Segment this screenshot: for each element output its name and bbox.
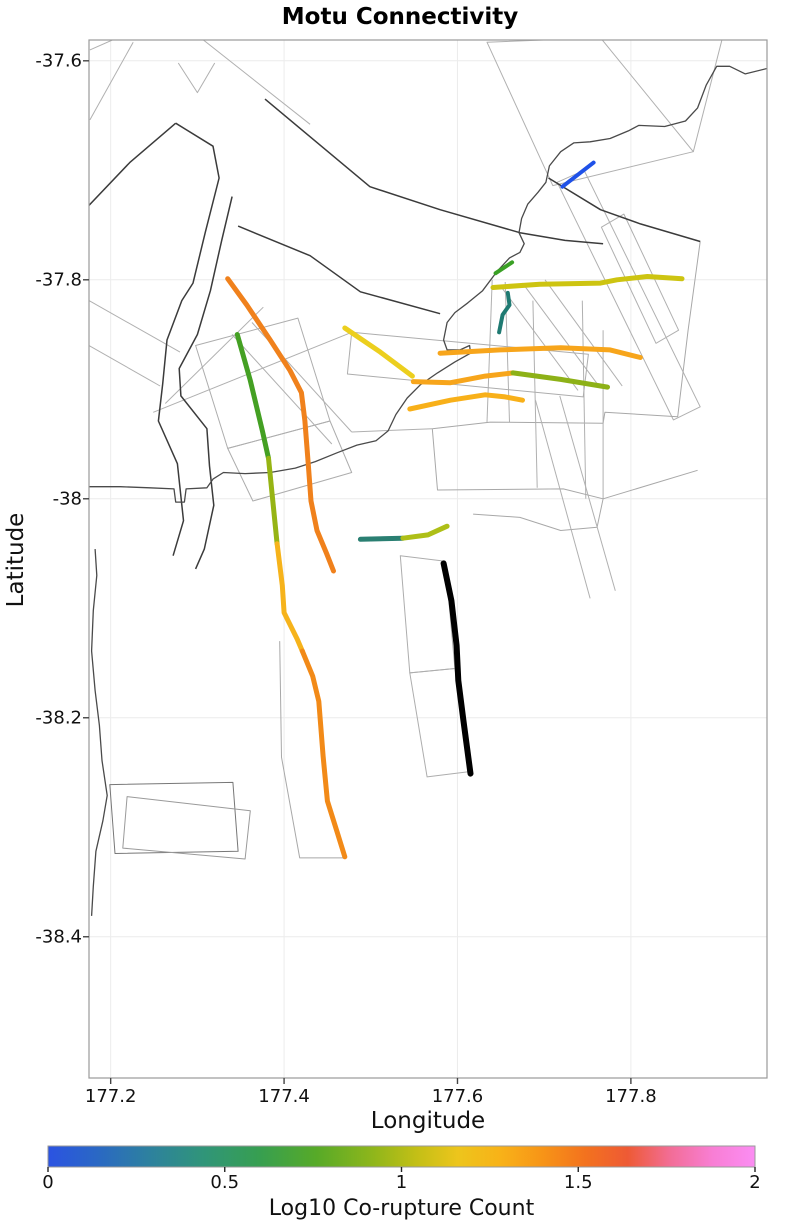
- colorbar-tick-label: 2: [749, 1172, 760, 1193]
- colorbar-tick-label: 0.5: [210, 1172, 239, 1193]
- fault-outline: [89, 346, 160, 387]
- map-content: [89, 38, 767, 916]
- fault-trace-dark: [179, 197, 232, 569]
- fault-outline: [560, 396, 616, 591]
- x-tick-label: 177.4: [258, 1086, 310, 1107]
- fault-outline: [693, 40, 722, 152]
- fault-trace-dark: [549, 178, 701, 242]
- colorbar-label: Log10 Co-rupture Count: [48, 1196, 755, 1221]
- trace-amber-lower: [410, 395, 523, 409]
- trace-long-south-orange: [302, 651, 345, 857]
- figure: Motu Connectivity Latitude Longitude Log…: [0, 0, 800, 1225]
- chart-title: Motu Connectivity: [0, 4, 800, 30]
- trace-chartreuse-long: [493, 277, 682, 288]
- fault-trace-dark: [238, 226, 440, 314]
- fault-outline: [352, 429, 433, 432]
- trace-teal-horizontal: [360, 538, 403, 539]
- fault-outline: [228, 421, 352, 501]
- fault-outline: [432, 242, 700, 429]
- fault-outline: [178, 63, 214, 93]
- fault-outline: [110, 782, 238, 853]
- x-tick-label: 177.6: [432, 1086, 484, 1107]
- trace-orange-mid-west: [413, 373, 513, 383]
- colorbar-tick-label: 1.5: [564, 1172, 593, 1193]
- fault-outline: [153, 332, 352, 412]
- fault-outline: [347, 332, 588, 397]
- y-tick-label: -37.6: [12, 50, 82, 71]
- trace-yellowgreen-mid-east: [513, 373, 608, 387]
- fault-outline: [536, 400, 591, 598]
- trace-chartreuse-horizontal: [403, 526, 447, 538]
- y-tick-label: -38.2: [12, 707, 82, 728]
- fault-outline: [90, 40, 113, 50]
- y-axis-label: Latitude: [3, 513, 29, 608]
- fault-outline: [123, 797, 251, 859]
- colorbar-tick-label: 1: [396, 1172, 407, 1193]
- fault-outline: [90, 42, 133, 120]
- colorbar: [48, 1146, 755, 1167]
- trace-orange-upper: [440, 348, 640, 358]
- fault-trace-dark: [265, 99, 603, 244]
- fault-outline: [582, 301, 586, 499]
- x-axis-label: Longitude: [89, 1108, 767, 1134]
- fault-outline: [203, 40, 310, 124]
- fault-outline: [232, 335, 332, 445]
- colorbar-tick-label: 0: [42, 1172, 53, 1193]
- map-canvas: [0, 0, 800, 1225]
- trace-long-mid-amber: [277, 544, 302, 651]
- trace-teal-short: [499, 293, 509, 332]
- x-tick-label: 177.2: [85, 1086, 137, 1107]
- x-tick-label: 177.8: [605, 1086, 657, 1107]
- fault-outline: [533, 301, 537, 488]
- trace-blue: [562, 163, 593, 187]
- y-tick-label: -37.8: [12, 269, 82, 290]
- fault-trace-dark: [158, 123, 219, 556]
- coastline: [92, 549, 108, 916]
- y-tick-label: -38: [12, 488, 82, 509]
- fault-outline: [473, 499, 603, 531]
- fault-trace-dark: [89, 123, 176, 205]
- y-tick-label: -38.4: [12, 926, 82, 947]
- fault-outline: [432, 429, 697, 499]
- trace-long-north-green: [237, 335, 268, 459]
